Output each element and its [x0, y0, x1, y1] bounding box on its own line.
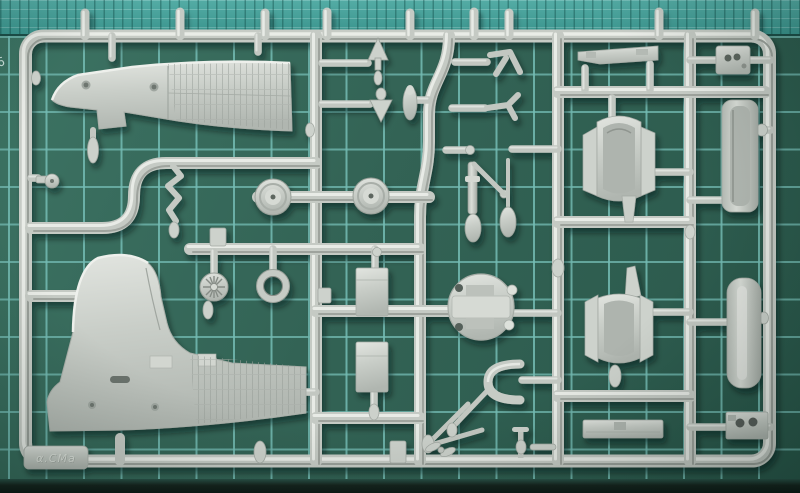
part-radio-box-bottom-right	[726, 412, 768, 439]
sprue-logo-text: α.CMa	[36, 452, 76, 465]
part-fuselage-half-forward	[52, 62, 292, 163]
part-landing-gear-oleo-strut	[465, 162, 504, 242]
part-main-wheel-left	[255, 179, 291, 215]
part-bomb-teardrop	[403, 85, 417, 120]
part-bracket-lower	[487, 95, 518, 118]
sprue-overlay: α.CMa α.CMa	[0, 0, 800, 493]
part-engine-bulkhead-disc	[448, 274, 517, 340]
part-exhaust-stack-squiggle	[168, 166, 181, 238]
part-gear-bomb-teardrop	[500, 160, 516, 237]
part-boarding-step-rail	[578, 46, 658, 64]
sprue-corner-logo-tab: α.CMa α.CMa	[24, 446, 88, 469]
part-cowling-scoop-upper	[583, 116, 655, 222]
part-gun-trough-right	[722, 100, 758, 212]
part-valve-pin	[512, 427, 529, 458]
part-drop-tank-half-right	[727, 278, 761, 388]
part-fuselage-half-rear-with-tailfin	[47, 255, 306, 431]
part-pitot-dart-down	[370, 88, 392, 122]
part-bracket-upper	[490, 52, 520, 74]
part-main-wheel-right	[353, 178, 389, 214]
part-instrument-box-top-right	[716, 46, 750, 74]
part-cowl-ring	[257, 270, 290, 303]
sprue-photo: 6	[0, 0, 800, 493]
part-tail-wheel	[36, 174, 59, 188]
part-roll-bar-u	[488, 364, 520, 400]
part-spoked-wheel-hub	[200, 273, 228, 319]
part-cowling-scoop-lower	[585, 266, 653, 387]
part-floor-plate-bottom	[583, 420, 663, 438]
